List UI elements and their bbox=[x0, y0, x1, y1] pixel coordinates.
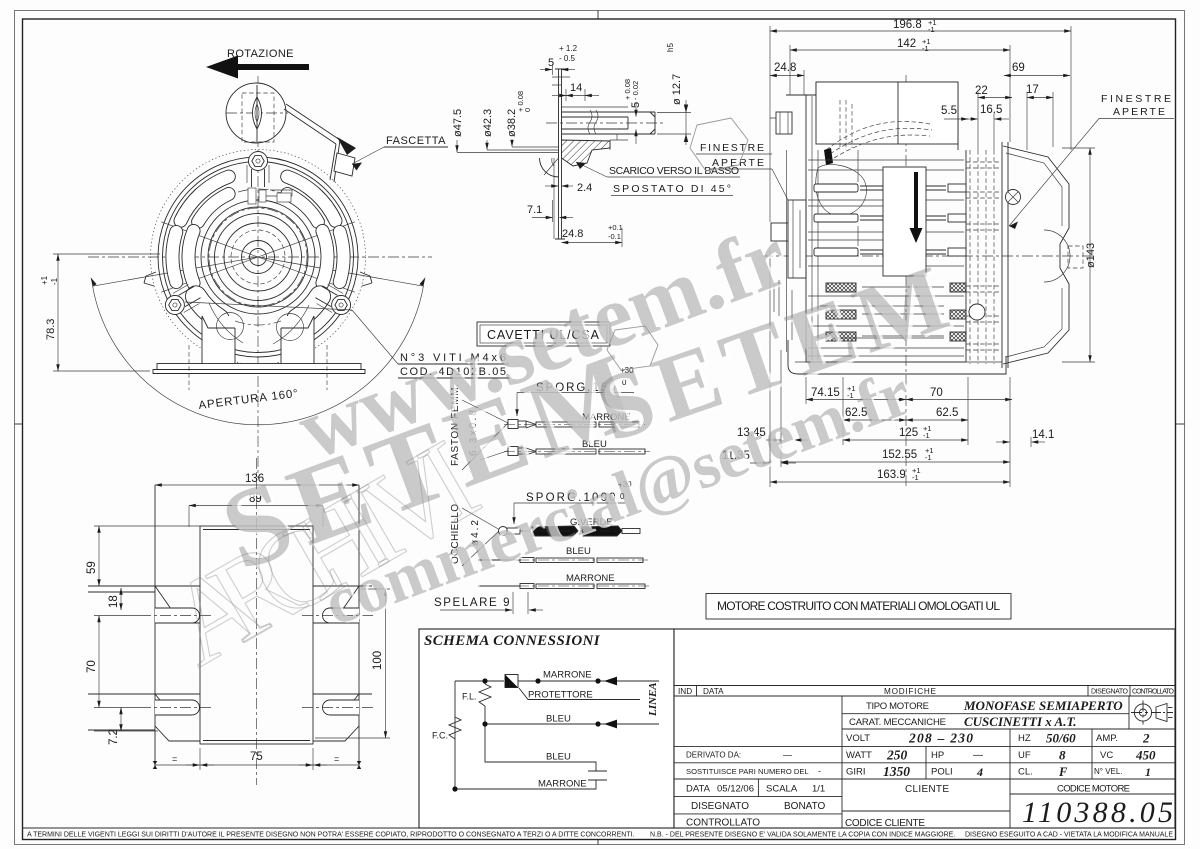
svg-text:5.5: 5.5 bbox=[941, 105, 957, 117]
svg-text:POLI: POLI bbox=[931, 767, 953, 778]
svg-text:—: — bbox=[783, 750, 792, 760]
svg-text:7.2: 7.2 bbox=[108, 729, 120, 745]
svg-text:—: — bbox=[973, 750, 983, 761]
svg-text:17: 17 bbox=[1026, 84, 1039, 96]
svg-text:1/1: 1/1 bbox=[812, 784, 825, 795]
svg-text:62.5: 62.5 bbox=[936, 407, 958, 419]
svg-text:14.1: 14.1 bbox=[1032, 429, 1054, 441]
svg-text:-1: -1 bbox=[928, 25, 935, 34]
svg-text:GIRI: GIRI bbox=[846, 767, 866, 778]
svg-text:DISEGNATO: DISEGNATO bbox=[1091, 689, 1129, 696]
svg-text:2: 2 bbox=[1142, 731, 1150, 746]
svg-text:208 – 230: 208 – 230 bbox=[908, 731, 973, 746]
svg-text:-1: -1 bbox=[923, 431, 930, 440]
svg-text:F.L.: F.L. bbox=[462, 692, 477, 702]
svg-text:152.55: 152.55 bbox=[882, 449, 917, 461]
svg-text:F: F bbox=[1058, 765, 1068, 779]
svg-text:A TERMINI DELLE VIGENTI LEGGI: A TERMINI DELLE VIGENTI LEGGI SUI DIRITT… bbox=[27, 830, 1173, 839]
svg-text:-1: -1 bbox=[912, 473, 919, 482]
svg-text:-1: -1 bbox=[922, 44, 929, 53]
svg-text:MOTORE COSTRUITO CON MATERIALI: MOTORE COSTRUITO CON MATERIALI OMOLOGATI… bbox=[717, 599, 1000, 613]
svg-text:CARAT. MECCANICHE: CARAT. MECCANICHE bbox=[849, 717, 946, 728]
svg-text:100: 100 bbox=[372, 651, 384, 670]
svg-text:N° VEL.: N° VEL. bbox=[1094, 767, 1123, 776]
svg-text:FASCETTA: FASCETTA bbox=[386, 135, 446, 147]
svg-text:F.C.: F.C. bbox=[432, 731, 448, 741]
svg-text:+1: +1 bbox=[40, 275, 49, 285]
svg-text:MONOFASE SEMIAPERTO: MONOFASE SEMIAPERTO bbox=[963, 698, 1123, 713]
svg-text:SCALA: SCALA bbox=[766, 784, 798, 795]
svg-text:CL.: CL. bbox=[1018, 767, 1033, 778]
svg-text:AMP.: AMP. bbox=[1096, 733, 1118, 744]
svg-text:-1: -1 bbox=[50, 277, 59, 285]
svg-text:70: 70 bbox=[930, 387, 943, 399]
svg-text:450: 450 bbox=[1135, 748, 1156, 763]
svg-text:- 0.02: - 0.02 bbox=[631, 81, 640, 100]
svg-text:-0.1: -0.1 bbox=[608, 232, 621, 241]
svg-text:+0.1: +0.1 bbox=[608, 223, 623, 232]
svg-text:05/12/06: 05/12/06 bbox=[717, 784, 754, 795]
svg-text:4: 4 bbox=[976, 765, 983, 779]
svg-text:ø47.5: ø47.5 bbox=[452, 109, 464, 137]
svg-text:8: 8 bbox=[1059, 748, 1066, 763]
svg-text:BLEU: BLEU bbox=[546, 752, 571, 763]
svg-text:PROTETTORE: PROTETTORE bbox=[528, 690, 593, 701]
svg-text:h5: h5 bbox=[666, 43, 675, 52]
svg-text:0: 0 bbox=[523, 108, 532, 112]
svg-text:HP: HP bbox=[931, 750, 944, 761]
svg-text:250: 250 bbox=[886, 748, 908, 763]
svg-text:BONATO: BONATO bbox=[784, 801, 826, 812]
svg-text:=: = bbox=[172, 754, 177, 764]
svg-text:SPOSTATO DI 45°: SPOSTATO DI 45° bbox=[613, 183, 731, 195]
svg-text:UF: UF bbox=[1018, 750, 1031, 761]
svg-text:LINEA: LINEA bbox=[647, 682, 659, 717]
svg-text:DATA: DATA bbox=[686, 784, 711, 795]
svg-text:+ 1.2: + 1.2 bbox=[559, 44, 578, 53]
svg-text:ø143: ø143 bbox=[1085, 243, 1097, 268]
svg-text:-: - bbox=[818, 766, 821, 776]
svg-text:WATT: WATT bbox=[846, 750, 872, 761]
svg-text:CODICE CLIENTE: CODICE CLIENTE bbox=[845, 818, 925, 829]
svg-text:BLEU: BLEU bbox=[546, 714, 571, 725]
svg-text:2.4: 2.4 bbox=[577, 182, 592, 194]
svg-text:SCHEMA CONNESSIONI: SCHEMA CONNESSIONI bbox=[424, 633, 601, 649]
svg-text:SCARICO VERSO IL BASSO: SCARICO VERSO IL BASSO bbox=[609, 165, 739, 177]
svg-text:IND: IND bbox=[678, 687, 692, 696]
svg-text:MARRONE: MARRONE bbox=[543, 670, 592, 681]
svg-text:78.3: 78.3 bbox=[45, 319, 57, 340]
svg-text:18: 18 bbox=[108, 595, 120, 608]
svg-text:-1: -1 bbox=[925, 453, 932, 462]
svg-text:MARRONE: MARRONE bbox=[538, 779, 587, 790]
svg-text:24.8: 24.8 bbox=[562, 228, 583, 240]
svg-text:50/60: 50/60 bbox=[1046, 731, 1076, 746]
svg-text:CONTROLLATO: CONTROLLATO bbox=[686, 818, 760, 829]
svg-text:7.1: 7.1 bbox=[527, 204, 542, 216]
svg-text:75: 75 bbox=[250, 751, 263, 763]
svg-text:24.8: 24.8 bbox=[774, 62, 796, 74]
svg-text:CUSCINETTI x A.T.: CUSCINETTI x A.T. bbox=[964, 714, 1076, 729]
svg-text:ø 12.7: ø 12.7 bbox=[671, 74, 683, 105]
svg-text:69: 69 bbox=[1012, 62, 1025, 74]
svg-text:VC: VC bbox=[1100, 750, 1113, 761]
svg-text:163.9: 163.9 bbox=[877, 469, 906, 481]
svg-text:- 0.5: - 0.5 bbox=[559, 54, 576, 63]
svg-text:59: 59 bbox=[86, 561, 98, 574]
svg-text:=: = bbox=[334, 754, 339, 764]
svg-text:196.8: 196.8 bbox=[893, 19, 922, 31]
svg-text:14: 14 bbox=[570, 82, 582, 94]
svg-text:VOLT: VOLT bbox=[846, 733, 870, 744]
svg-text:MARRONE: MARRONE bbox=[566, 573, 615, 584]
svg-text:DISEGNATO: DISEGNATO bbox=[691, 801, 749, 812]
svg-text:5: 5 bbox=[548, 57, 554, 69]
svg-text:142: 142 bbox=[897, 38, 916, 50]
svg-text:CLIENTE: CLIENTE bbox=[905, 784, 949, 795]
svg-text:FINESTRE: FINESTRE bbox=[700, 142, 764, 154]
svg-text:ø42.3: ø42.3 bbox=[482, 109, 494, 137]
svg-text:TIPO MOTORE: TIPO MOTORE bbox=[866, 701, 929, 712]
svg-text:HZ: HZ bbox=[1018, 733, 1031, 744]
svg-text:110388.05: 110388.05 bbox=[1022, 796, 1173, 829]
svg-text:16.5: 16.5 bbox=[980, 104, 1002, 116]
svg-text:1: 1 bbox=[1145, 765, 1151, 779]
svg-text:SOSTITUISCE PARI NUMERO DEL: SOSTITUISCE PARI NUMERO DEL bbox=[686, 767, 809, 776]
svg-text:22: 22 bbox=[975, 85, 988, 97]
svg-text:MODIFICHE: MODIFICHE bbox=[884, 687, 937, 696]
svg-text:DERIVATO DA:: DERIVATO DA: bbox=[686, 751, 741, 760]
svg-text:FINESTRE: FINESTRE bbox=[1101, 93, 1171, 105]
svg-text:ø38.2: ø38.2 bbox=[506, 109, 518, 137]
svg-text:1350: 1350 bbox=[883, 764, 910, 779]
svg-text:CONTROLLATO: CONTROLLATO bbox=[1132, 689, 1175, 696]
svg-text:CODICE MOTORE: CODICE MOTORE bbox=[1057, 784, 1130, 795]
svg-text:70: 70 bbox=[86, 660, 98, 673]
svg-text:DATA: DATA bbox=[703, 687, 724, 696]
